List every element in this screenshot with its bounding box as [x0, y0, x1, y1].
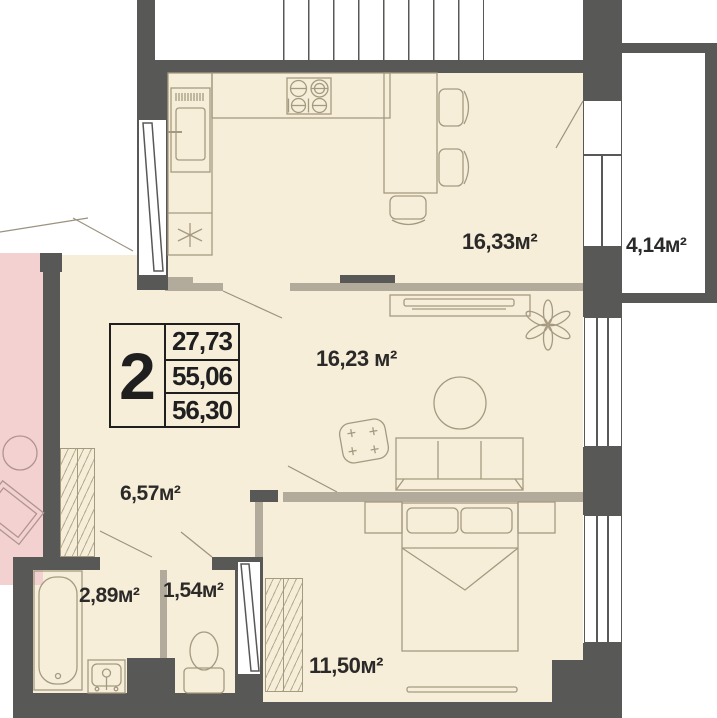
stove-icon [287, 78, 331, 114]
room-label-bedroom: 11,50м² [309, 653, 383, 679]
bed-icon [402, 503, 518, 651]
kitchen-counter-icon [168, 73, 390, 255]
living-area-value: 27,73 [166, 325, 238, 359]
total-area-value: 56,30 [166, 392, 238, 426]
nightstand-icon [365, 502, 402, 533]
door-swing-lines [0, 101, 583, 557]
nightstand-icon [518, 502, 555, 533]
pouf-icon [338, 417, 390, 464]
sofa-icon [396, 438, 523, 490]
bathroom-sink-icon [88, 660, 125, 693]
room-label-kitchen-dining: 16,33м² [462, 229, 537, 255]
rooms-count: 2 [111, 325, 166, 426]
dining-table-icon [384, 73, 469, 225]
room-label-hallway: 6,57м² [120, 482, 180, 506]
plant-icon [524, 300, 572, 350]
room-label-balcony: 4,14м² [626, 234, 686, 258]
bathtub-icon [34, 571, 82, 690]
room-label-toilet: 1,54м² [163, 579, 223, 603]
floor-plan: 2 27,73 55,06 56,30 16,33м² 4,14м² 16,23… [0, 0, 717, 718]
entry-door-leaf-icon [143, 123, 163, 271]
adjacent-room-furniture-icon [0, 436, 44, 544]
apartment-area-value: 55,06 [166, 359, 238, 393]
apartment-info-box: 2 27,73 55,06 56,30 [109, 323, 240, 428]
room-label-bathroom: 2,89м² [79, 584, 139, 608]
coffee-table-icon [434, 377, 486, 429]
kitchen-sink-icon [168, 88, 210, 172]
room-label-living: 16,23 м² [316, 346, 397, 372]
radiator-icon [407, 687, 517, 692]
toilet-icon [184, 632, 224, 693]
bedroom-door-leaf-icon [241, 564, 259, 671]
tv-console-icon [390, 295, 530, 316]
fridge-icon [178, 223, 202, 247]
